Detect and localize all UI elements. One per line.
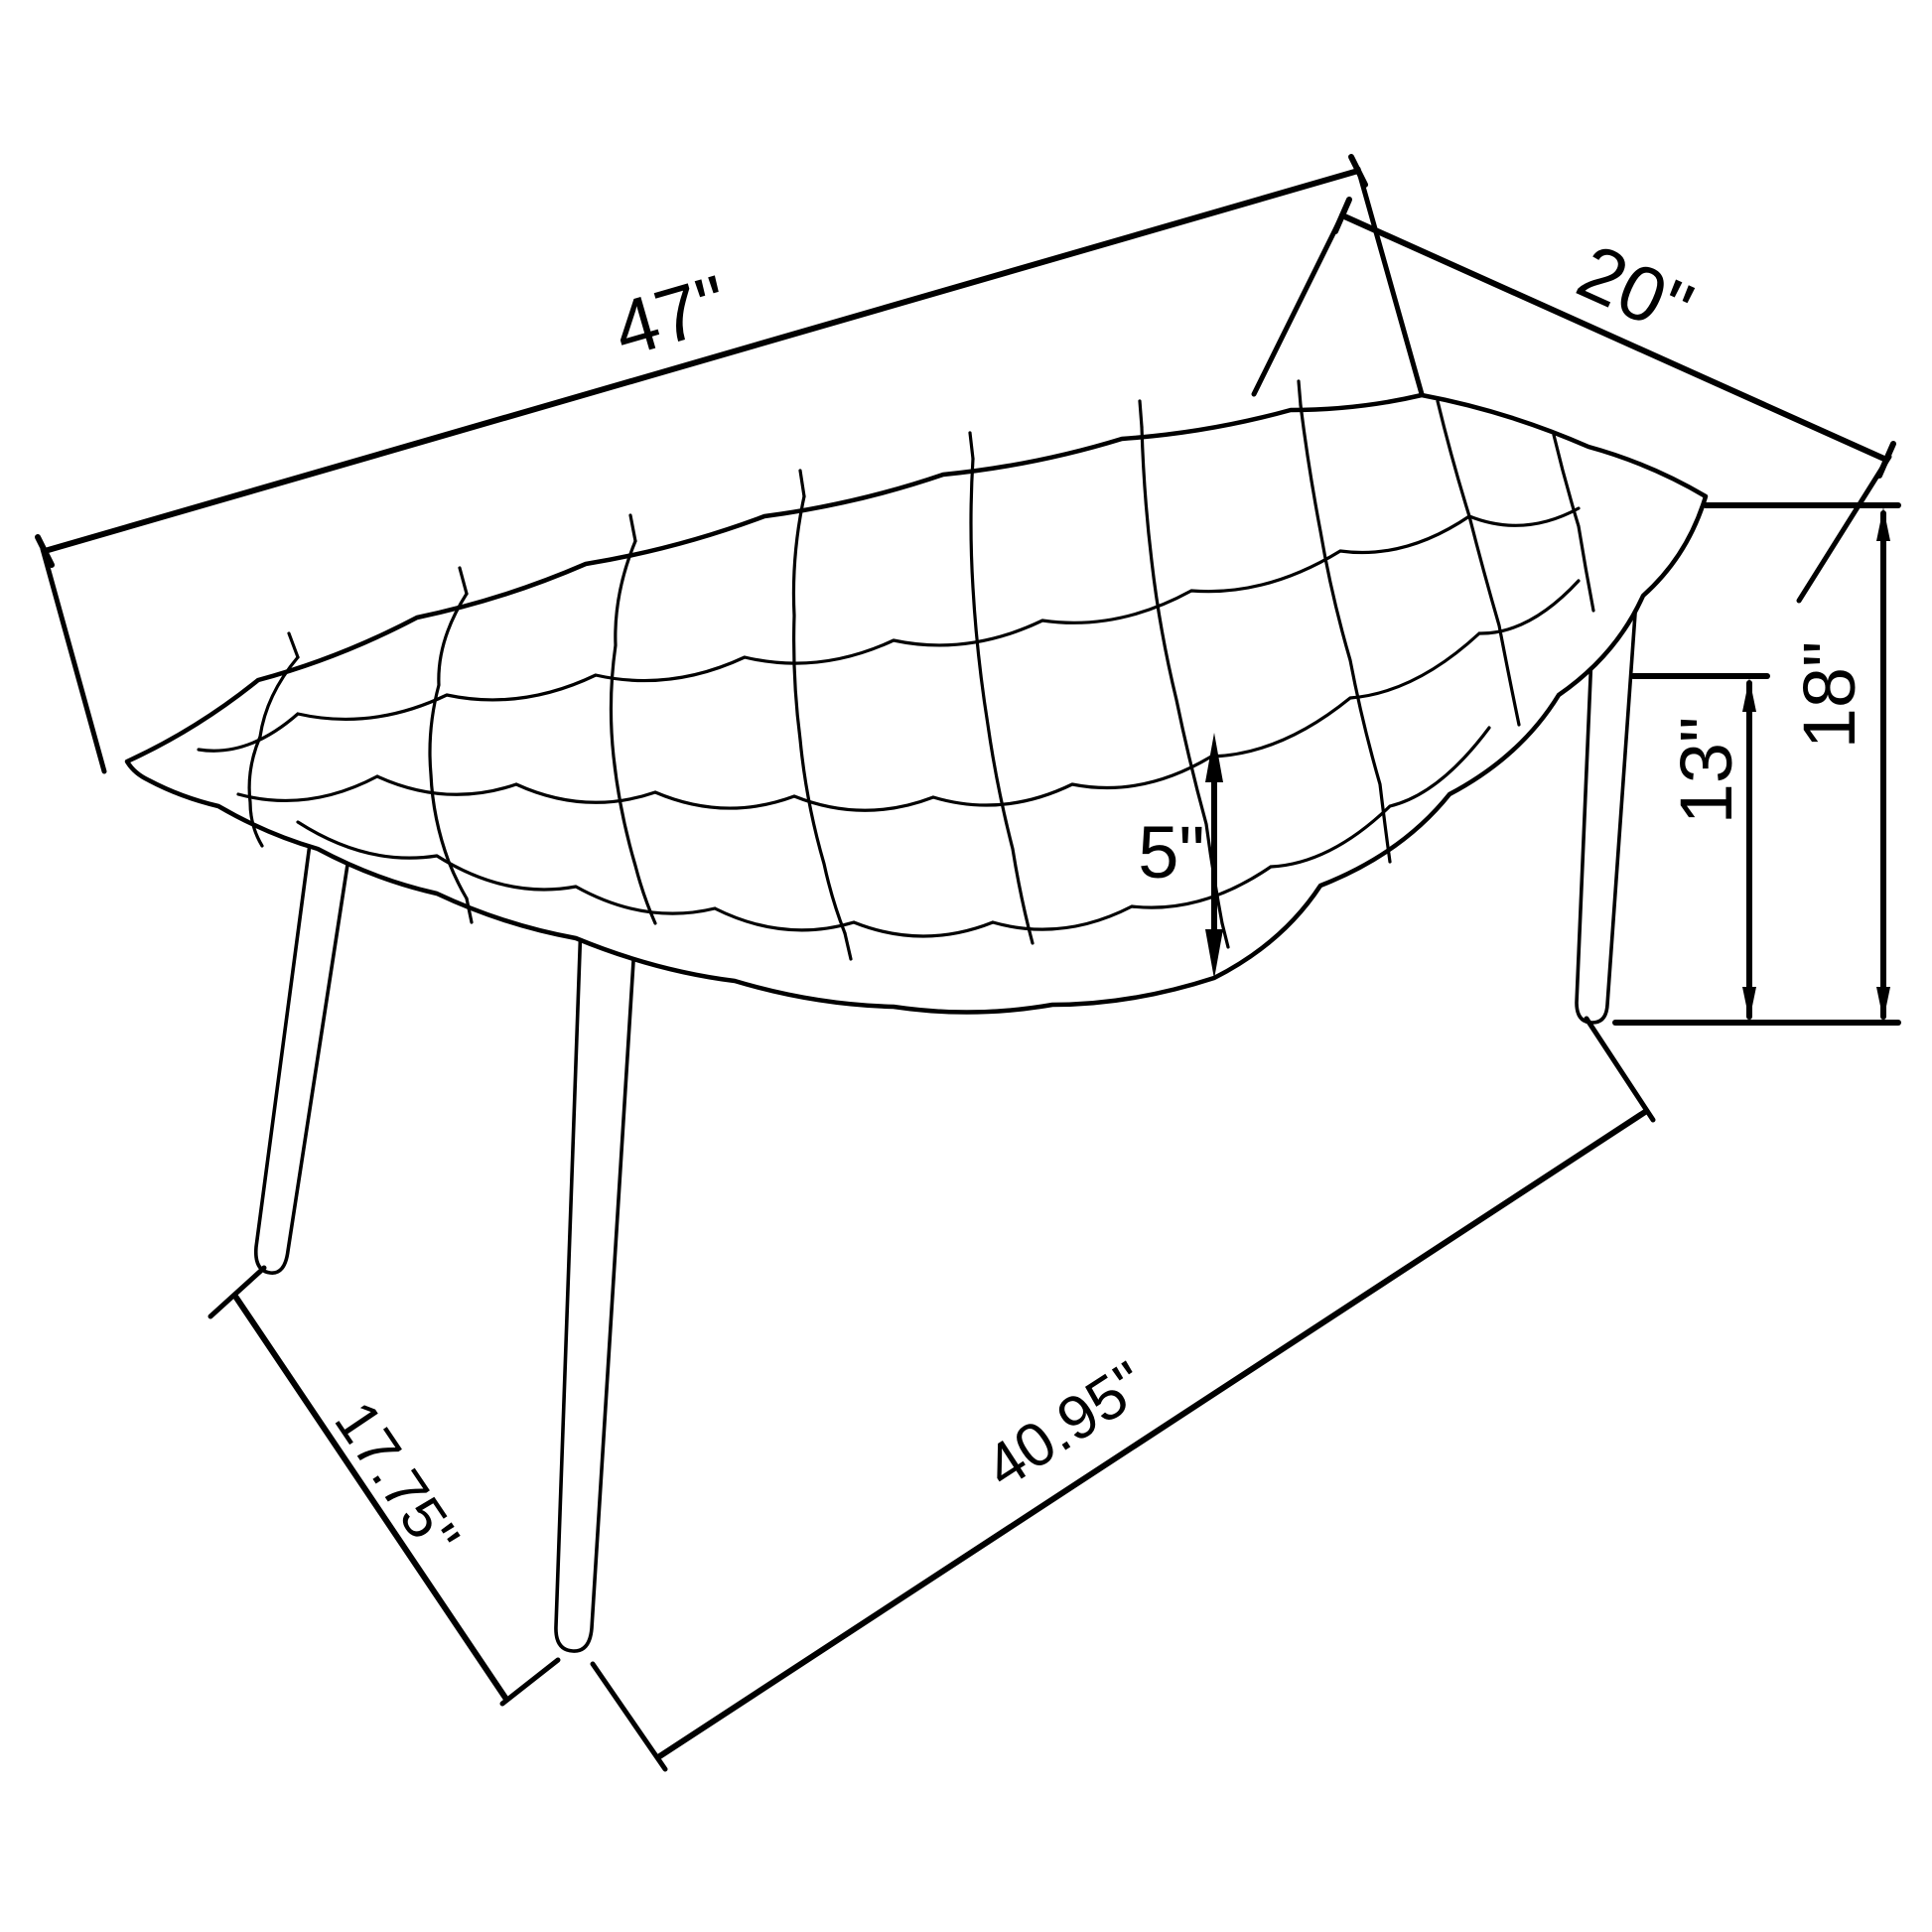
dimension-leg-height-13: 13"	[1633, 676, 1767, 1021]
dim-cushion-label: 5"	[1138, 811, 1204, 894]
extension-line	[502, 1660, 558, 1704]
bench-seat-outline	[127, 395, 1706, 1013]
dim-height-label: 18"	[1788, 641, 1870, 750]
diagram-canvas: 47" 20" 18" 13" 5" 17.75"	[0, 0, 1932, 1932]
bench-seat	[127, 381, 1706, 1013]
extension-line	[1799, 457, 1889, 601]
extension-line	[43, 549, 104, 771]
dim-depth-label: 20"	[1566, 227, 1705, 353]
bench-leg-front-left	[556, 923, 635, 1651]
extension-line	[1254, 215, 1342, 394]
bench-dimension-diagram: 47" 20" 18" 13" 5" 17.75"	[0, 0, 1932, 1932]
extension-line	[210, 1268, 264, 1316]
extension-line	[1358, 169, 1422, 394]
bench-leg-back-left	[256, 844, 349, 1273]
extension-line	[593, 1664, 665, 1769]
extension-line	[1587, 1019, 1653, 1120]
dim-footprint-length-label: 40.95"	[974, 1349, 1159, 1502]
dim-leg-height-label: 13"	[1665, 717, 1747, 825]
dimension-footprint-depth-17-75: 17.75"	[210, 1268, 558, 1704]
dimension-footprint-length-40-95: 40.95"	[593, 1019, 1653, 1769]
